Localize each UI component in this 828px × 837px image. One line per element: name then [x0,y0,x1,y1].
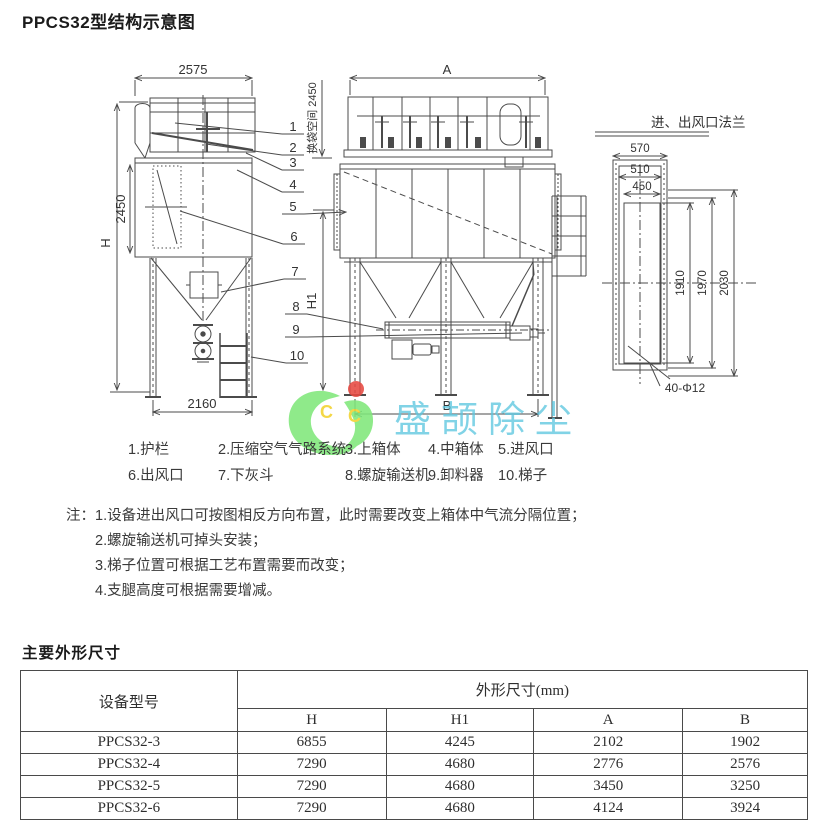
callout-2: 2 [289,140,296,155]
value-cell: 4680 [386,798,534,820]
callout-numbers: 1 2 3 4 5 6 7 8 9 10 [289,119,304,363]
note-line: 4.支腿高度可根据需要增减。 [95,579,586,604]
legend-item: 5.进风口 [498,438,554,459]
value-cell: 3250 [683,776,808,798]
callout-1: 1 [289,119,296,134]
page-title: PPCS32型结构示意图 [22,8,195,33]
legend-item: 3.上箱体 [345,438,401,459]
model-cell: PPCS32-5 [21,776,238,798]
dim-label-2030: 2030 [719,270,731,296]
col-header-a: A [534,709,683,732]
dim-label-450: 450 [632,181,651,193]
callout-4: 4 [289,177,296,192]
legend-item: 7.下灰斗 [218,464,274,485]
dimension-labels: 2575 H 2450 2160 换袋空间 2450 A H1 B 进、出风口法… [98,62,746,413]
legend-item: 8.螺旋输送机 [345,464,430,485]
value-cell: 4680 [386,754,534,776]
bolt-spec-label: 40-Φ12 [665,381,706,395]
value-cell: 2576 [683,754,808,776]
front-view [313,78,586,418]
note-line: 2.螺旋输送机可掉头安装； [95,529,586,554]
col-header-h: H [237,709,386,732]
spec-table: 设备型号 外形尺寸(mm) H H1 A B PPCS32-3685542452… [20,670,808,820]
model-cell: PPCS32-4 [21,754,238,776]
value-cell: 4245 [386,732,534,754]
dim-label-2575: 2575 [179,62,208,77]
value-cell: 3450 [534,776,683,798]
flange-view-title: 进、出风口法兰 [651,115,746,130]
dim-label-1970: 1970 [697,270,709,296]
col-header-h1: H1 [386,709,534,732]
callout-3: 3 [289,155,296,170]
notes-block: 注：1.设备进出风口可按图相反方向布置，此时需要改变上箱体中气流分隔位置； 2.… [66,504,586,604]
callout-leaders [175,123,522,363]
col-header-model: 设备型号 [21,671,238,732]
value-cell: 7290 [237,776,386,798]
model-cell: PPCS32-6 [21,798,238,820]
structure-diagram: 2575 H 2450 2160 换袋空间 2450 A H1 B 进、出风口法… [0,48,828,433]
side-view [110,78,332,416]
dim-label-2160: 2160 [188,396,217,411]
value-cell: 7290 [237,754,386,776]
callout-10: 10 [290,348,304,363]
callout-7: 7 [291,264,298,279]
dim-label-h1: H1 [304,293,319,310]
note-line: 1.设备进出风口可按图相反方向布置，此时需要改变上箱体中气流分隔位置； [95,508,586,524]
value-cell: 4124 [534,798,683,820]
legend-item: 1.护栏 [128,438,169,459]
table-row: PPCS32-57290468034503250 [21,776,808,798]
dim-label-h: H [98,238,113,247]
dim-label-510: 510 [630,164,649,176]
legend-item: 4.中箱体 [428,438,484,459]
value-cell: 1902 [683,732,808,754]
value-cell: 4680 [386,776,534,798]
dim-label-2450: 2450 [113,195,128,224]
callout-5: 5 [289,199,296,214]
document-page: { "page": { "title": "PPCS32型结构示意图", "se… [0,0,828,837]
dim-label-a: A [443,62,452,77]
legend-item: 10.梯子 [498,464,547,485]
legend-item: 2.压缩空气气路系统 [218,438,346,459]
value-cell: 2776 [534,754,683,776]
notes-label: 注： [66,508,95,524]
dim-label-570: 570 [630,143,649,155]
legend-item: 9.卸料器 [428,464,484,485]
value-cell: 7290 [237,798,386,820]
note-line: 3.梯子位置可根据工艺布置需要而改变； [95,554,586,579]
value-cell: 6855 [237,732,386,754]
value-cell: 3924 [683,798,808,820]
dim-label-b: B [443,398,452,413]
col-header-dims-group: 外形尺寸(mm) [237,671,807,709]
model-cell: PPCS32-3 [21,732,238,754]
flange-view [595,132,756,386]
section-title: 主要外形尺寸 [22,641,121,663]
spec-table-body: PPCS32-36855424521021902PPCS32-472904680… [21,732,808,820]
callout-9: 9 [292,322,299,337]
callout-8: 8 [292,299,299,314]
dim-label-1910: 1910 [675,270,687,296]
table-row: PPCS32-67290468041243924 [21,798,808,820]
dim-label-bag-space: 换袋空间 2450 [305,82,319,154]
legend-item: 6.出风口 [128,464,184,485]
col-header-b: B [683,709,808,732]
callout-6: 6 [290,229,297,244]
value-cell: 2102 [534,732,683,754]
table-row: PPCS32-47290468027762576 [21,754,808,776]
table-row: PPCS32-36855424521021902 [21,732,808,754]
